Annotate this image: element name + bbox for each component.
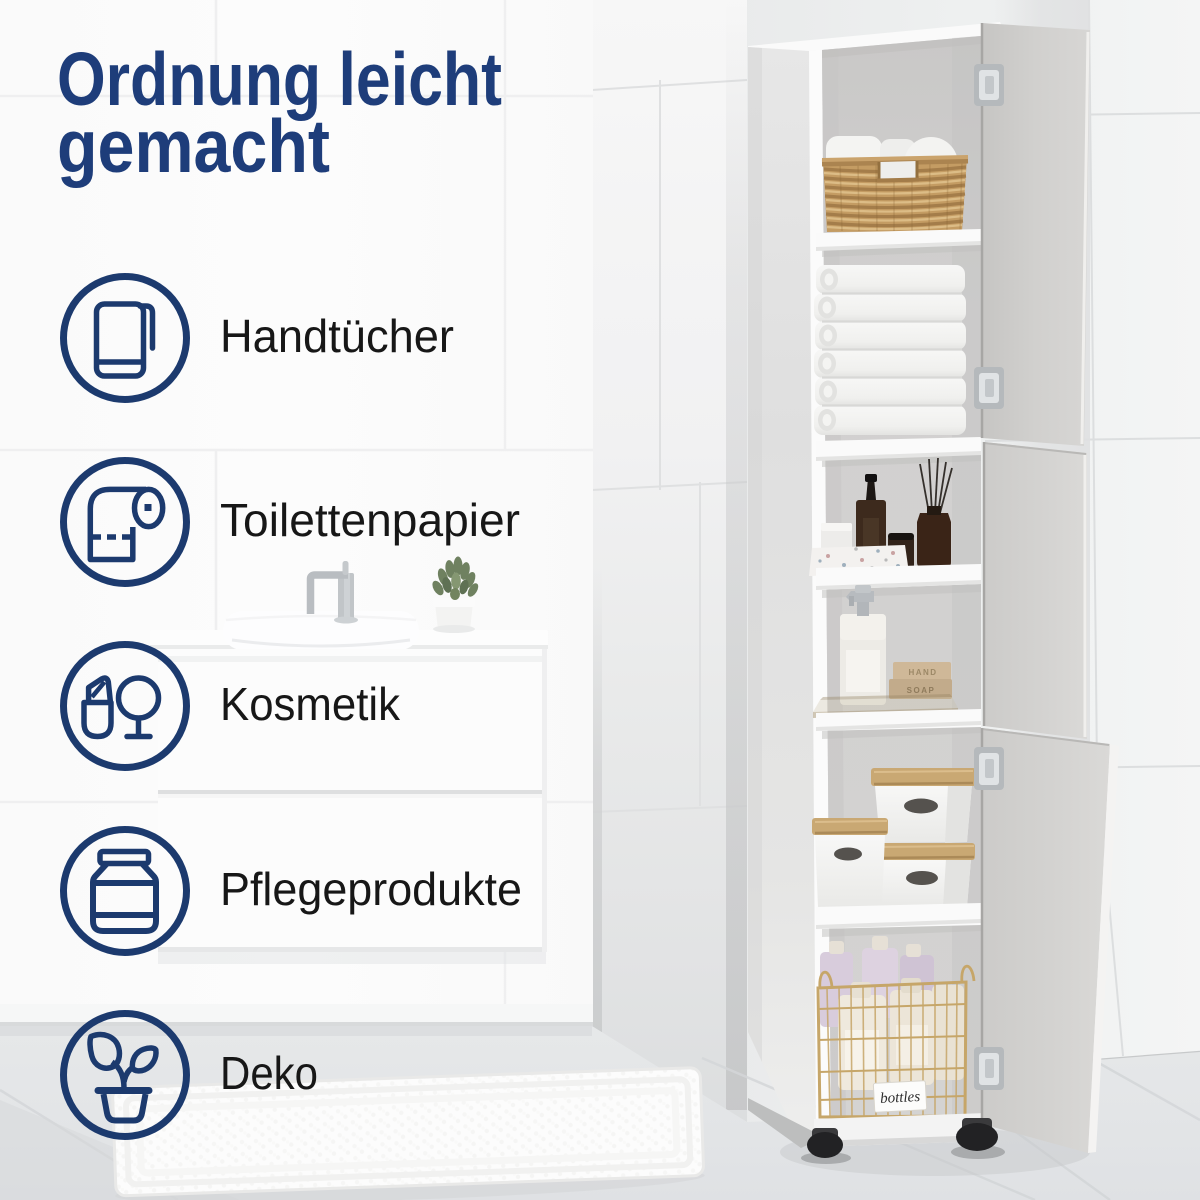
svg-text:Toilettenpapier: Toilettenpapier <box>220 494 520 546</box>
svg-text:gemacht: gemacht <box>57 104 330 188</box>
svg-text:HAND: HAND <box>908 668 937 677</box>
svg-text:Handtücher: Handtücher <box>220 310 454 362</box>
svg-text:SOAP: SOAP <box>907 686 936 695</box>
svg-text:Pflegeprodukte: Pflegeprodukte <box>220 863 522 915</box>
svg-text:Kosmetik: Kosmetik <box>220 678 401 730</box>
svg-text:Deko: Deko <box>220 1047 318 1099</box>
svg-text:bottles: bottles <box>880 1089 921 1107</box>
